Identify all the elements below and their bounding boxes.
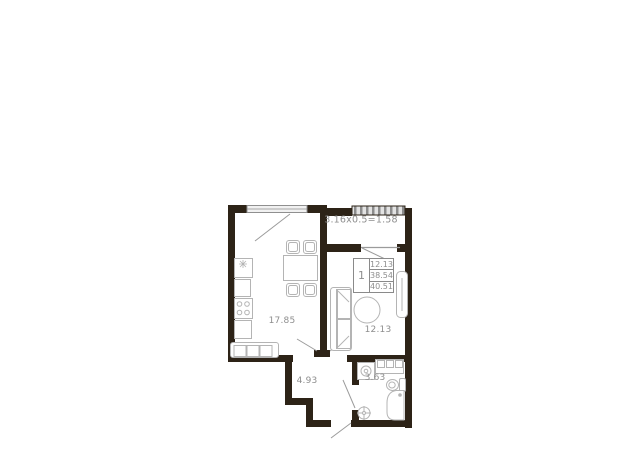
hallway-area-label: 4.93	[297, 376, 318, 386]
kitchen-stove	[235, 299, 253, 319]
apartment-legend: 1 12.13 38.54 40.51	[353, 258, 394, 293]
kitchen-counter-1	[235, 280, 251, 297]
kitchen-sink-unit	[235, 259, 253, 278]
wall-right	[405, 208, 412, 428]
wall-bottom-right	[351, 420, 412, 427]
bathroom-shelf	[376, 360, 404, 374]
wall-top-left-of-window	[228, 205, 247, 213]
legend-rooms-count: 1	[354, 259, 370, 292]
wall-middle	[320, 205, 327, 357]
balcony-area-formula: 3.16x0.5=1.58	[324, 215, 398, 226]
round-table	[354, 297, 380, 323]
kitchen-area-label: 17.85	[269, 316, 296, 326]
wall-left	[228, 205, 235, 362]
floor-plan-graphics	[0, 0, 640, 473]
bathroom-sink	[357, 406, 371, 420]
chair-inner	[289, 243, 298, 252]
kitchen-counter-2	[235, 321, 252, 339]
dining-table	[284, 256, 318, 281]
room-sofa	[331, 288, 352, 351]
corner-bathtub	[387, 391, 404, 421]
kitchen-window-swing-line	[255, 214, 290, 241]
wall-hall-left	[285, 355, 292, 405]
room-area-label: 12.13	[365, 325, 392, 335]
wall-balcony-bottom-left	[327, 244, 361, 252]
entrance-door-swing-line	[331, 423, 351, 438]
faucet-icon	[239, 260, 247, 268]
kitchen-door-swing-line	[297, 339, 317, 351]
wall-bottom-left	[306, 420, 331, 427]
legend-total-area: 40.51	[370, 282, 393, 292]
legend-area-without-balcony: 38.54	[370, 270, 393, 281]
legend-areas: 12.13 38.54 40.51	[370, 259, 393, 292]
wardrobe	[397, 272, 408, 318]
chair-inner	[306, 286, 315, 295]
floor-plan: 3.16x0.5=1.58 17.85 12.13 4.93 3.63 1 12…	[0, 0, 640, 473]
legend-living-area: 12.13	[370, 259, 393, 270]
chair-inner	[306, 243, 315, 252]
walls	[228, 205, 412, 428]
toilet	[387, 379, 406, 392]
chair-inner	[289, 286, 298, 295]
kitchen-sofa	[231, 343, 279, 358]
bathroom-area-label: 3.63	[365, 373, 386, 383]
